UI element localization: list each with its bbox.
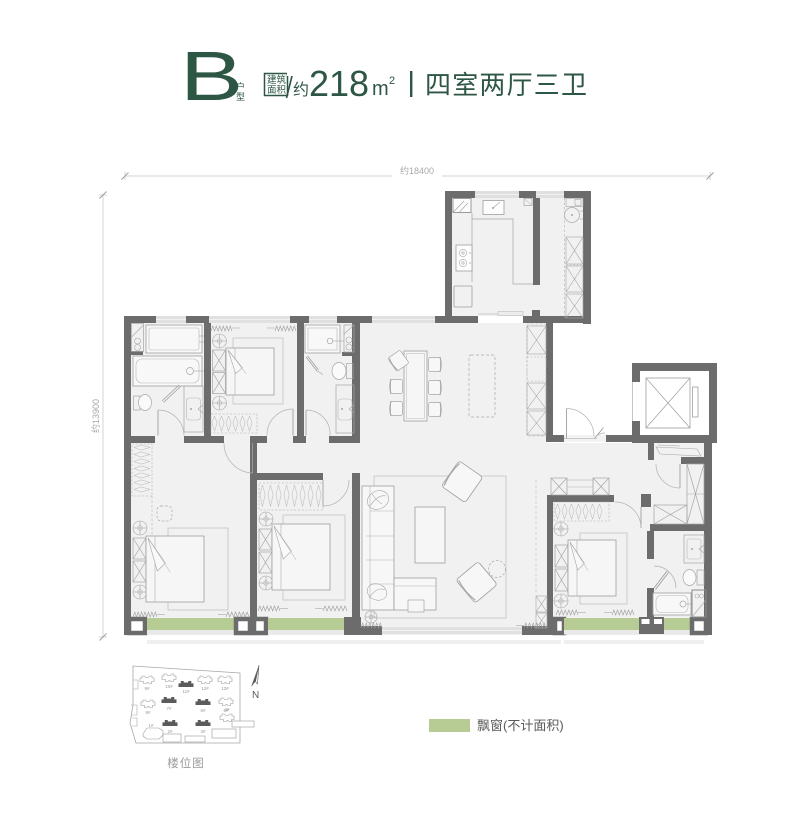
svg-text:m: m xyxy=(372,78,389,100)
svg-text:飘窗(不计面积): 飘窗(不计面积) xyxy=(477,718,564,733)
svg-text:型: 型 xyxy=(236,92,245,102)
svg-text:3#: 3# xyxy=(200,729,206,734)
svg-text:4#: 4# xyxy=(224,707,230,712)
svg-text:10#: 10# xyxy=(165,684,173,689)
svg-text:N: N xyxy=(252,690,259,701)
svg-text:楼位图: 楼位图 xyxy=(167,756,205,770)
svg-text:12#: 12# xyxy=(201,686,209,691)
svg-text:四室两厅三卫: 四室两厅三卫 xyxy=(425,70,588,100)
svg-text:约13900: 约13900 xyxy=(90,399,101,433)
svg-text:户: 户 xyxy=(236,81,245,92)
svg-text:面积: 面积 xyxy=(267,84,287,96)
svg-text:6#: 6# xyxy=(200,708,206,713)
svg-text:2#: 2# xyxy=(167,729,173,734)
svg-text:2: 2 xyxy=(389,75,395,87)
svg-text:9#: 9# xyxy=(144,686,150,691)
svg-text:B: B xyxy=(180,37,243,115)
svg-text:13#: 13# xyxy=(221,686,229,691)
svg-text:1#: 1# xyxy=(148,723,154,728)
svg-text:7#: 7# xyxy=(166,706,172,711)
svg-text:218: 218 xyxy=(309,63,369,104)
svg-text:约18400: 约18400 xyxy=(400,165,434,176)
svg-text:8#: 8# xyxy=(145,710,151,715)
svg-text:约: 约 xyxy=(293,81,309,99)
svg-text:11#: 11# xyxy=(182,689,190,694)
